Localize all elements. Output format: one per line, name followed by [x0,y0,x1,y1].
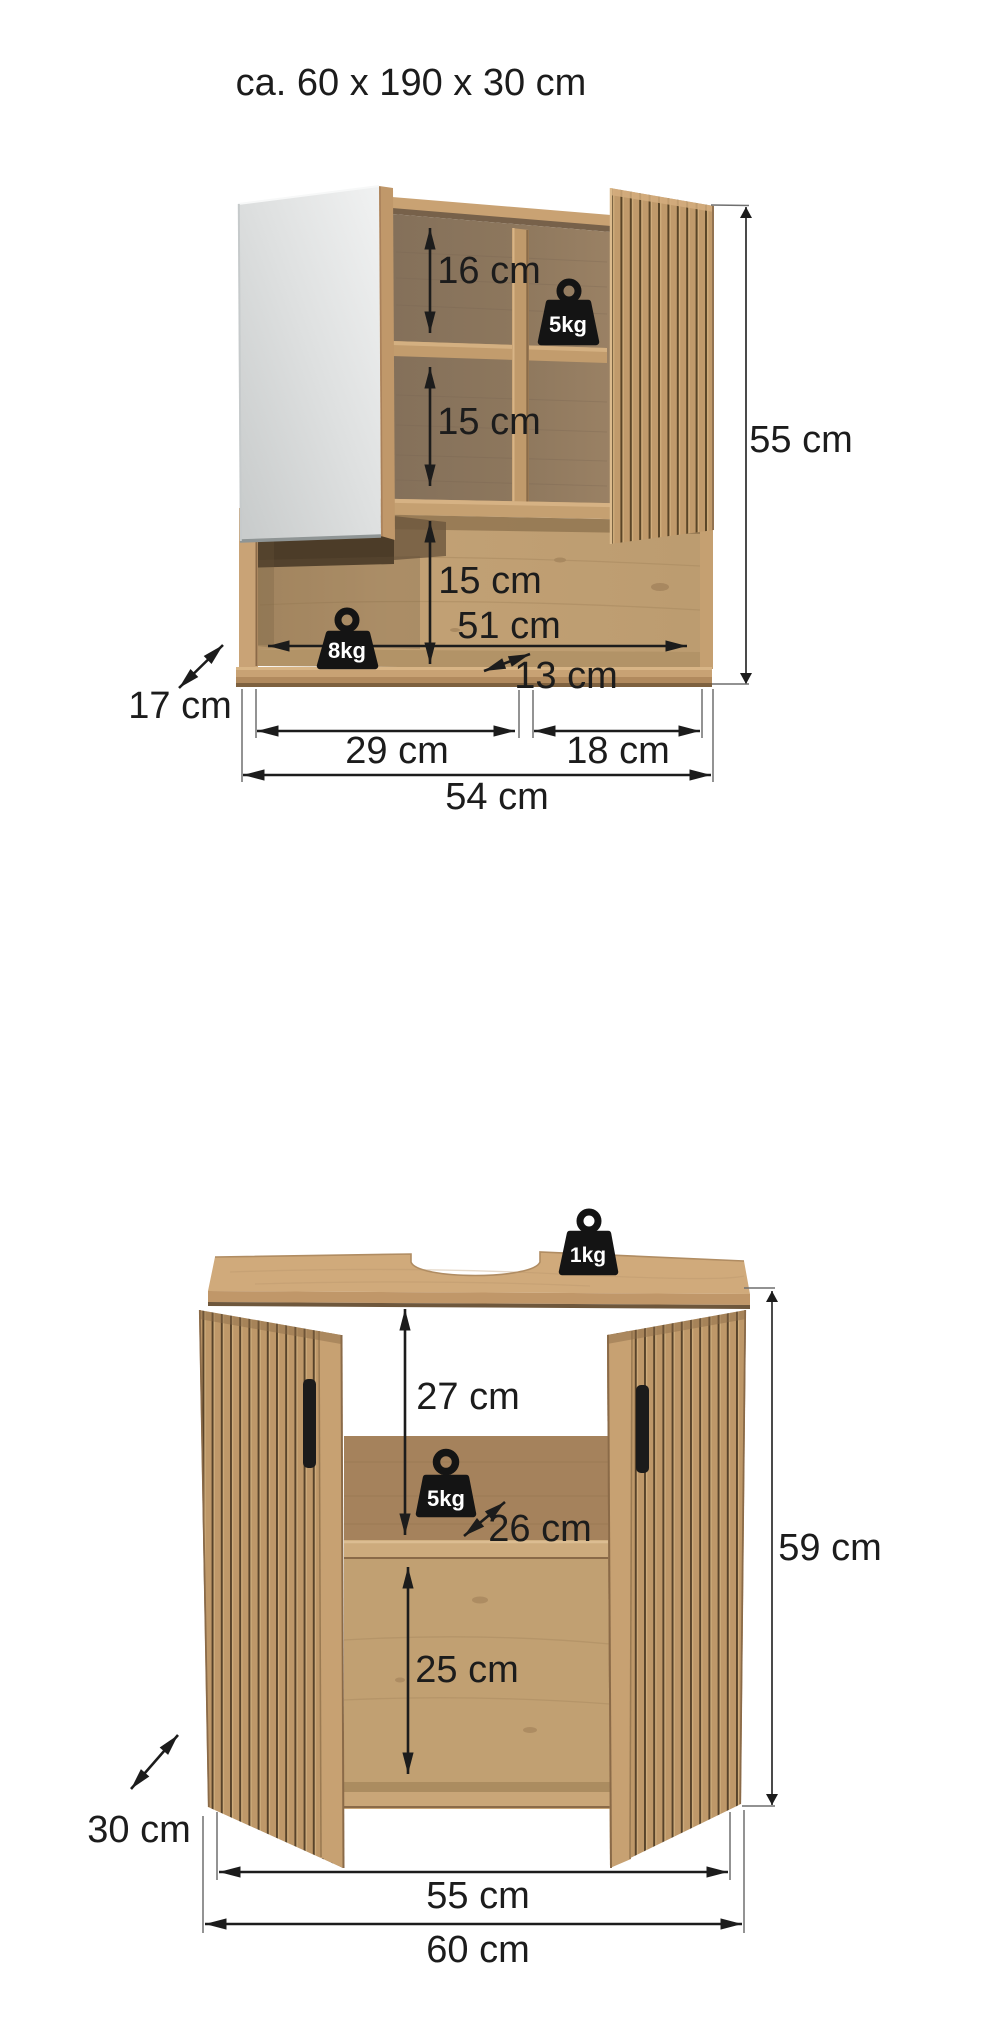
svg-text:27 cm: 27 cm [416,1376,519,1418]
svg-text:ca. 60 x 190 x 30 cm: ca. 60 x 190 x 30 cm [236,62,587,104]
svg-text:13 cm: 13 cm [514,655,617,697]
svg-text:55 cm: 55 cm [749,419,852,461]
svg-text:51 cm: 51 cm [457,605,560,647]
svg-text:25 cm: 25 cm [415,1649,518,1691]
svg-text:26 cm: 26 cm [488,1508,591,1550]
svg-text:54 cm: 54 cm [445,776,548,818]
svg-text:5kg: 5kg [549,312,587,337]
svg-text:17 cm: 17 cm [128,685,231,727]
svg-text:30 cm: 30 cm [87,1809,190,1851]
svg-text:29 cm: 29 cm [345,730,448,772]
svg-text:15 cm: 15 cm [437,401,540,443]
svg-text:1kg: 1kg [570,1244,606,1267]
svg-text:16 cm: 16 cm [437,250,540,292]
svg-text:60 cm: 60 cm [426,1929,529,1971]
svg-text:55 cm: 55 cm [426,1875,529,1917]
svg-text:59 cm: 59 cm [778,1527,881,1569]
svg-text:15 cm: 15 cm [438,560,541,602]
svg-text:5kg: 5kg [427,1486,465,1511]
svg-text:18 cm: 18 cm [566,730,669,772]
svg-text:8kg: 8kg [328,638,366,663]
